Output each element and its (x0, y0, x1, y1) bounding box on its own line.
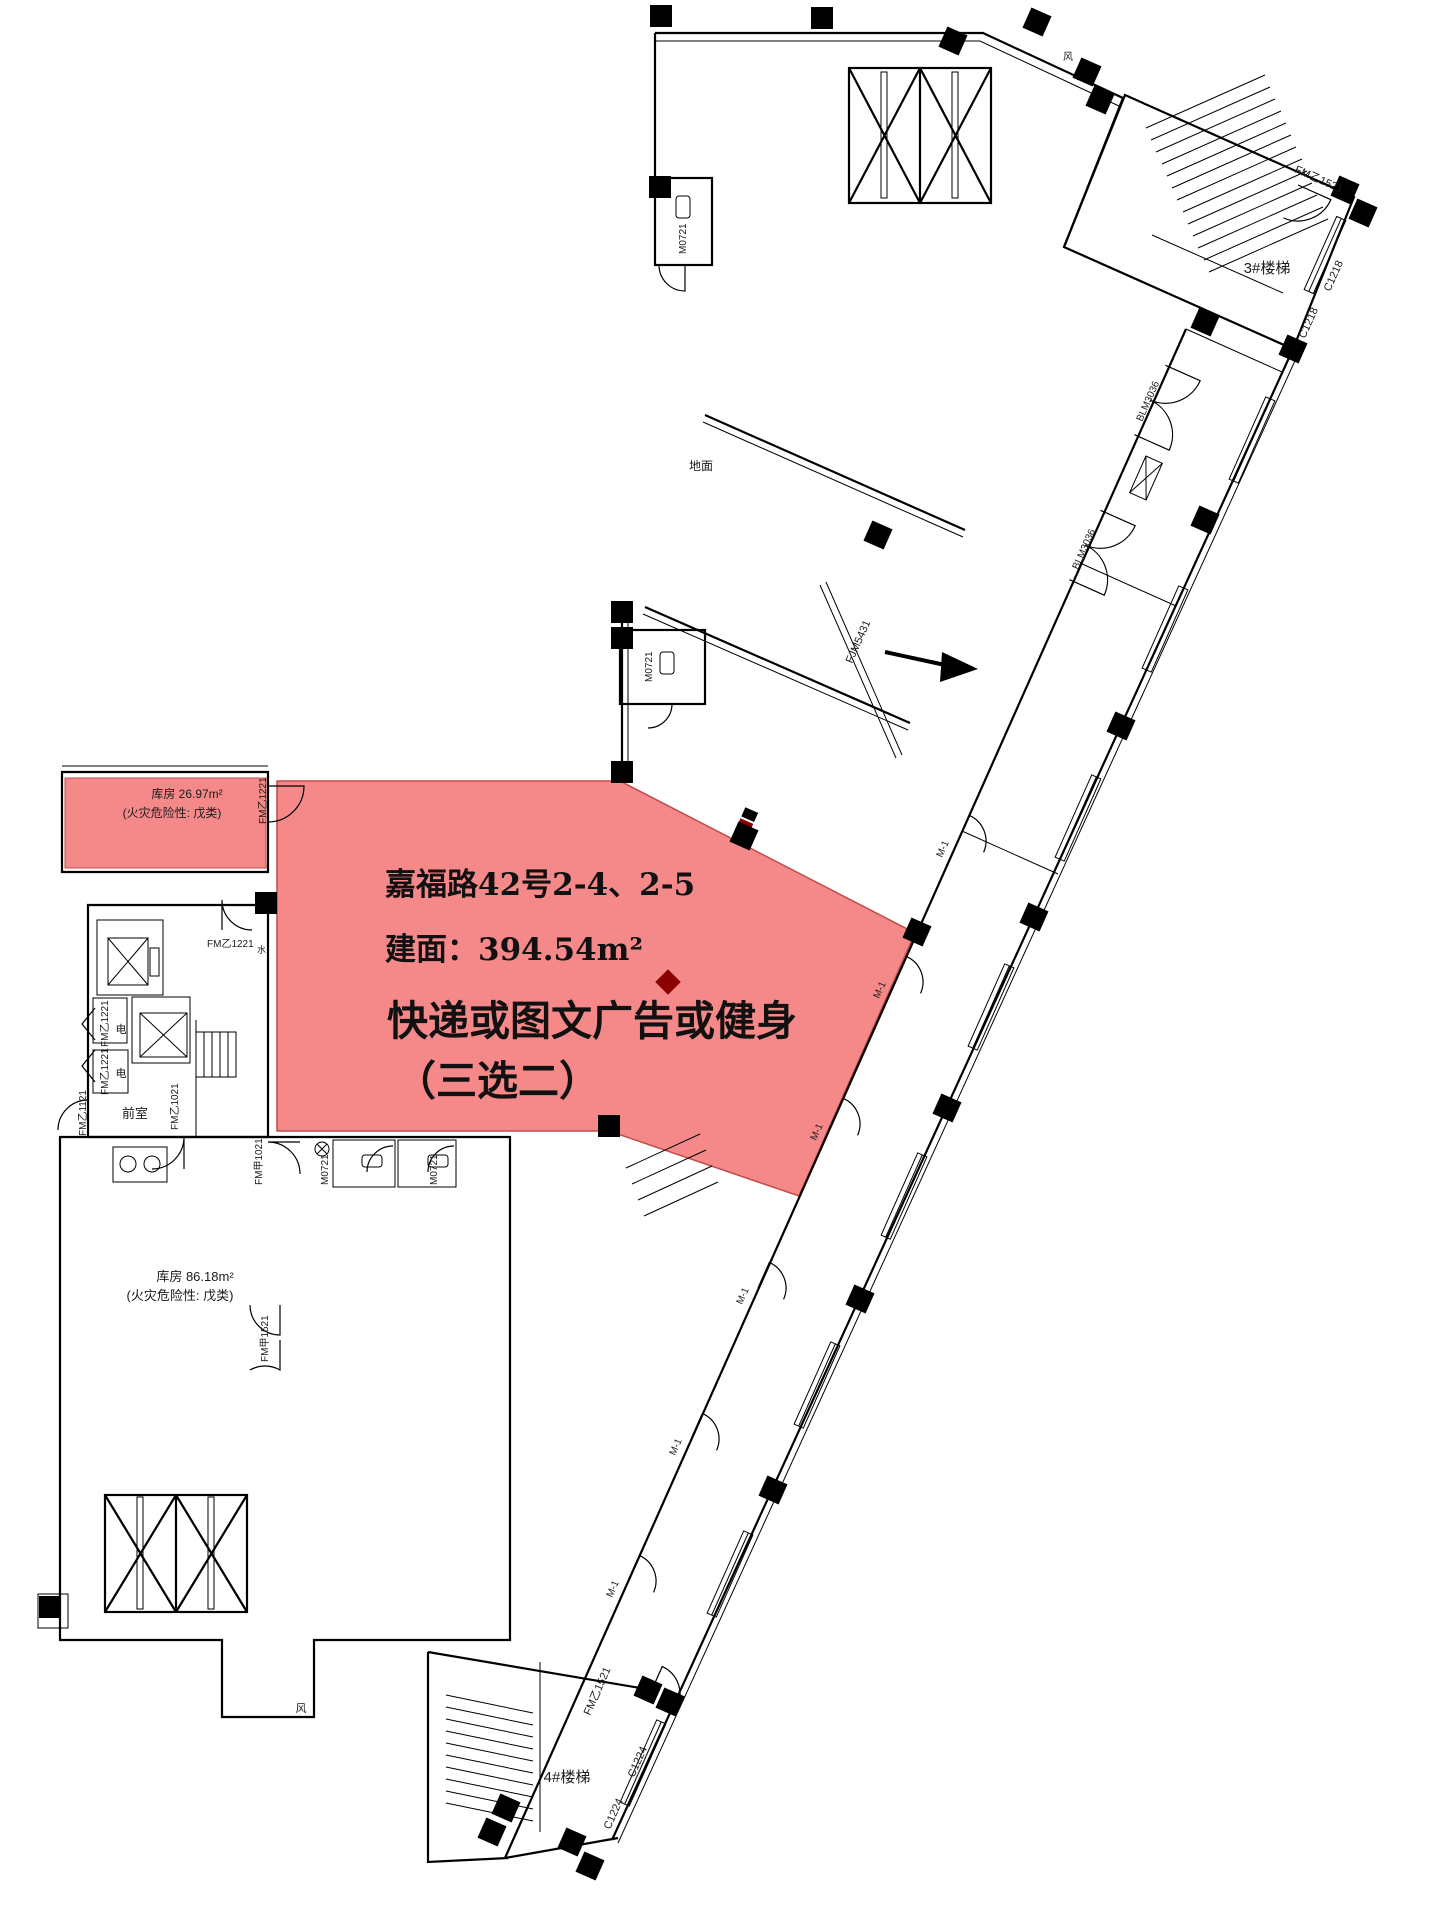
door-label-fjm5431: FJM5431 (844, 618, 874, 665)
vent-label-top: 风 (1063, 51, 1073, 63)
highlight-areas (65, 778, 915, 1196)
stair4-label: 4#楼梯 (544, 1769, 591, 1786)
unit-address: 嘉福路42号2-4、2-5 (385, 867, 695, 903)
window-label-c1224-b: C1224 (602, 1797, 626, 1831)
storage-large-hazard: (火灾危险性: 戊类) (127, 1288, 234, 1303)
water-label: 水 (257, 944, 266, 955)
basin-icon (120, 1156, 136, 1172)
unit-area: 建面：394.54m² (385, 932, 643, 968)
front-room-label: 前室 (122, 1106, 148, 1121)
door-label-m1-4: M-1 (735, 1286, 752, 1307)
door-label-fm1521-jia: FM甲1521 (260, 1315, 271, 1362)
door-label-m0721-b: M0721 (644, 651, 655, 682)
door-label-fm1221-v1: FM乙1221 (257, 777, 269, 824)
fan-icon (315, 1142, 329, 1156)
door-label-m1-1: M-1 (935, 839, 952, 860)
door-label-fm1221-v2: FM乙1221 (99, 1000, 111, 1047)
ground-label: 地面 (689, 459, 713, 473)
direction-arrow (885, 652, 978, 682)
door-label-fm1521-bottom: FM乙1521 (581, 1665, 614, 1717)
unit-usage: 快递或图文广告或健身 (387, 997, 797, 1045)
storage-small-hazard: (火灾危险性: 戊类) (123, 805, 222, 820)
door-label-m0721-c: M0721 (320, 1154, 331, 1185)
window-label-c1218-b: C1218 (1297, 306, 1321, 340)
door-label-m1-5: M-1 (668, 1437, 685, 1458)
stair3-label: 3#楼梯 (1244, 260, 1291, 277)
door-label-m1-6: M-1 (605, 1579, 622, 1600)
unit-usage-note: （三选二） (395, 1057, 600, 1105)
door-label-blm3036-a: BLM3036 (1135, 379, 1163, 423)
floor-plan-svg: 嘉福路42号2-4、2-5 建面：394.54m² 快递或图文广告或健身 （三选… (0, 0, 1432, 1929)
door-label-m0721-d: M0721 (429, 1154, 440, 1185)
vent-label-bottom: 风 (296, 1702, 307, 1715)
door-label-fm1221-h: FM乙1221 (207, 938, 254, 950)
elec-shaft-label-2: 电 (116, 1067, 127, 1080)
door-label-fm1021-jia: FM甲1021 (254, 1138, 265, 1185)
door-label-fm1021-yi: FM乙1021 (169, 1083, 181, 1130)
toilet-icon (676, 196, 690, 218)
fixed-glazing (1130, 456, 1163, 500)
elec-shaft-label-1: 电 (116, 1023, 127, 1036)
storage-large-label: 库房 86.18m² (156, 1269, 234, 1284)
floor-plan-page: 嘉福路42号2-4、2-5 建面：394.54m² 快递或图文广告或健身 （三选… (0, 0, 1432, 1929)
toilet-icon (660, 652, 674, 674)
door-label-m0721-a: M0721 (678, 223, 689, 254)
door-label-fm1221-v3: FM乙1221 (99, 1048, 111, 1095)
window-label-c1218-a: C1218 (1322, 259, 1346, 293)
door-label-fm1521-top: FM乙1521 (1293, 163, 1345, 196)
storage-small-label: 库房 26.97m² (151, 786, 222, 801)
door-label-fm1121: FM乙1121 (77, 1090, 89, 1136)
window-label-c1224-a: C1224 (626, 1745, 650, 1779)
